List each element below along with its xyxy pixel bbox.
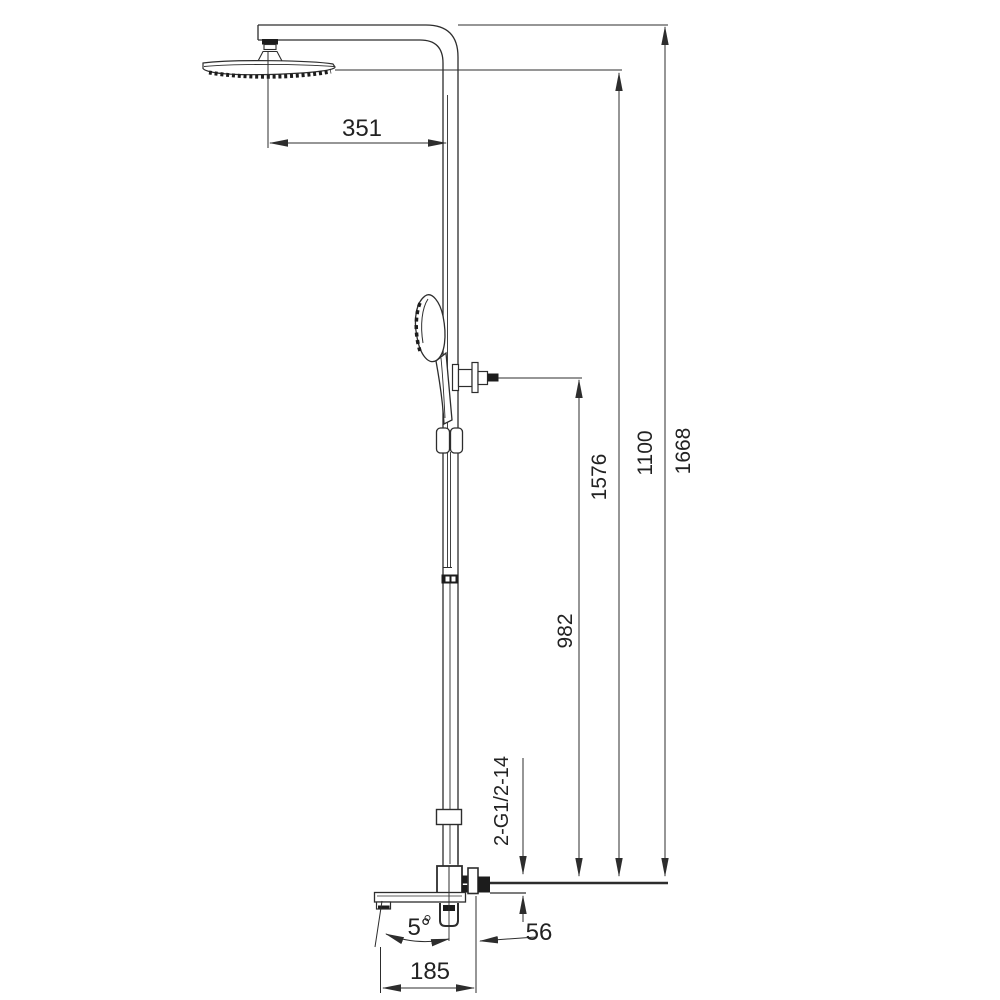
- hand-shower-handle: [436, 353, 452, 424]
- rain-shower-head: [203, 61, 335, 77]
- shower-dimension-drawing: 351 982 1576 1100 1668 2-G1/2-14 56 5° 1…: [0, 0, 1000, 1000]
- label-arm-reach: 351: [342, 115, 382, 142]
- label-handshower-height: 982: [554, 613, 577, 648]
- supply-connection: [478, 877, 490, 893]
- hand-shower: [415, 295, 452, 424]
- dimension-lines: [268, 25, 668, 993]
- wall-supply-elbow: [453, 363, 499, 393]
- label-head-height: 1576: [588, 454, 611, 501]
- shower-column: [258, 25, 458, 864]
- label-outlet-offset: 56: [526, 919, 553, 946]
- wall-flange: [468, 868, 478, 894]
- label-riser-height: 1100: [634, 430, 657, 475]
- drawing-canvas: 351 982 1576 1100 1668 2-G1/2-14 56 5° 1…: [0, 0, 1000, 1000]
- label-spout-reach: 185: [410, 958, 450, 985]
- label-thread-callout: 2-G1/2-14: [491, 756, 513, 846]
- label-overall-height: 1668: [672, 428, 695, 475]
- label-spout-angle: 5°: [408, 914, 431, 941]
- dimension-labels: 351 982 1576 1100 1668 2-G1/2-14 56 5° 1…: [342, 115, 695, 985]
- pipe-joint: [442, 575, 459, 584]
- ball-joint: [258, 39, 283, 62]
- slider-bracket: [437, 428, 463, 453]
- shower-arm: [258, 25, 458, 864]
- threaded-nipple: [488, 374, 499, 382]
- mixer-valve: [437, 810, 491, 894]
